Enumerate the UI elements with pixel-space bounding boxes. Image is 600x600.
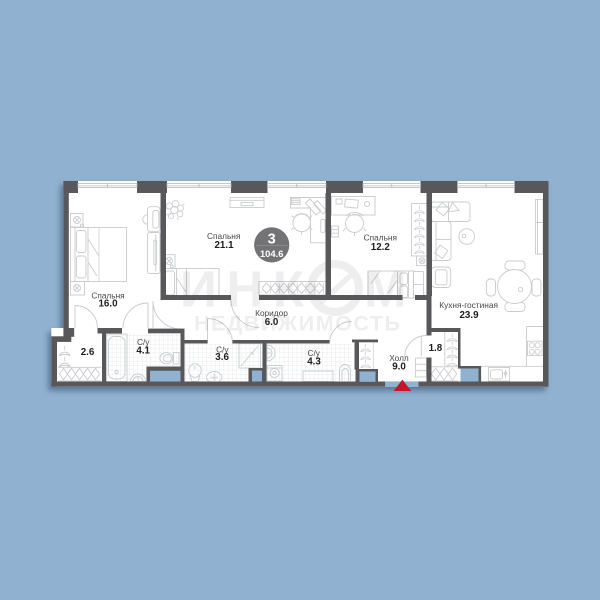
svg-text:23.9: 23.9 (459, 310, 479, 321)
svg-text:4.1: 4.1 (136, 346, 150, 357)
svg-text:М: М (364, 261, 406, 318)
svg-text:ИНК: ИНК (180, 261, 307, 318)
svg-text:4.3: 4.3 (307, 356, 321, 367)
svg-text:104.6: 104.6 (260, 248, 283, 259)
svg-text:3.6: 3.6 (215, 352, 229, 363)
svg-text:6.0: 6.0 (265, 317, 279, 328)
svg-text:Спальня: Спальня (364, 233, 397, 243)
svg-text:НЕДВИЖИМОСТЬ: НЕДВИЖИМОСТЬ (194, 312, 402, 336)
svg-text:16.0: 16.0 (98, 298, 118, 309)
svg-text:2.6: 2.6 (81, 347, 95, 358)
svg-text:1.8: 1.8 (429, 343, 443, 354)
svg-text:21.1: 21.1 (214, 240, 234, 251)
svg-text:9.0: 9.0 (392, 362, 406, 373)
svg-text:Кухня-гостиная: Кухня-гостиная (439, 300, 498, 310)
svg-text:12.2: 12.2 (371, 242, 391, 253)
